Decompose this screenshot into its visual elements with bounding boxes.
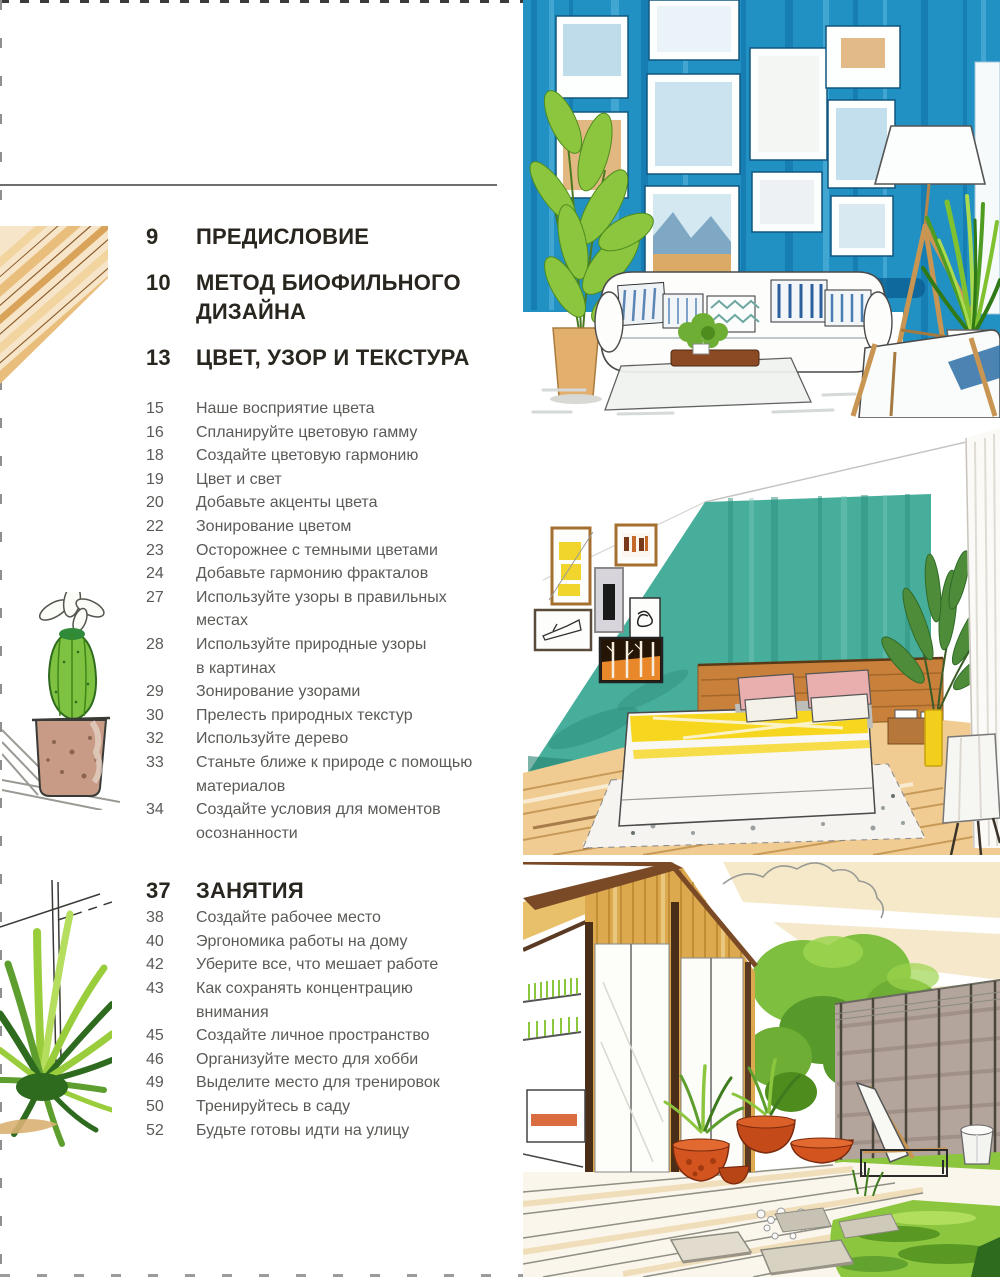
item-title: Создайте цветовую гармонию xyxy=(196,444,524,468)
top-dashed-border xyxy=(0,0,524,3)
leaves xyxy=(0,914,112,1144)
item-title: Создайте рабочее место xyxy=(196,906,524,930)
item-page-number: 46 xyxy=(146,1048,196,1072)
item-title: Добавьте акценты цвета xyxy=(196,491,524,515)
item-page-number: 32 xyxy=(146,727,196,751)
item-page-number: 20 xyxy=(146,491,196,515)
toc-item: 46Организуйте место для хобби xyxy=(146,1048,524,1072)
toc-item: 49Выделите место для тренировок xyxy=(146,1071,524,1095)
item-page-number: 52 xyxy=(146,1119,196,1143)
item-title: Используйте дерево xyxy=(196,727,524,751)
item-page-number: 34 xyxy=(146,798,196,845)
item-page-number: 40 xyxy=(146,930,196,954)
garden-stool xyxy=(961,1125,993,1164)
item-page-number: 45 xyxy=(146,1024,196,1048)
item-page-number: 24 xyxy=(146,562,196,586)
item-title: Создайте условия для моментов осознаннос… xyxy=(196,798,524,845)
patio-illustration xyxy=(523,862,1000,1277)
toc-section-heading: 10 МЕТОД БИОФИЛЬНОГО ДИЗАЙНА xyxy=(146,268,524,326)
item-title: Как сохранять концентрацию внимания xyxy=(196,977,524,1024)
toc-section-heading: 13 ЦВЕТ, УЗОР И ТЕКСТУРА xyxy=(146,343,524,372)
item-page-number: 43 xyxy=(146,977,196,1024)
item-title: Тренируйтесь в саду xyxy=(196,1095,524,1119)
item-page-number: 19 xyxy=(146,468,196,492)
section-title: ЦВЕТ, УЗОР И ТЕКСТУРА xyxy=(196,343,524,372)
item-title: Наше восприятие цвета xyxy=(196,397,524,421)
item-title: Зонирование цветом xyxy=(196,515,524,539)
toc-item: 40Эргономика работы на дому xyxy=(146,930,524,954)
toc-item: 16Спланируйте цветовую гамму xyxy=(146,421,524,445)
yucca-illustration xyxy=(0,872,112,1157)
fireplace xyxy=(600,638,662,682)
item-title: Используйте природные узоры в картинах xyxy=(196,633,524,680)
item-title: Эргономика работы на дому xyxy=(196,930,524,954)
item-title: Создайте личное пространство xyxy=(196,1024,524,1048)
item-title: Добавьте гармонию фракталов xyxy=(196,562,524,586)
section-title: ЗАНЯТИЯ xyxy=(196,876,524,905)
toc-item: 27Используйте узоры в правильных местах xyxy=(146,586,524,633)
book-toc-page: 9 ПРЕДИСЛОВИЕ 10 МЕТОД БИОФИЛЬНОГО ДИЗАЙ… xyxy=(0,0,1000,1277)
flower xyxy=(37,592,107,633)
patio-sketch xyxy=(523,862,1000,1277)
item-page-number: 29 xyxy=(146,680,196,704)
item-page-number: 30 xyxy=(146,704,196,728)
toc-item: 42Уберите все, что мешает работе xyxy=(146,953,524,977)
item-page-number: 38 xyxy=(146,906,196,930)
toc-item: 32Используйте дерево xyxy=(146,727,524,751)
toc-item: 34Создайте условия для моментов осознанн… xyxy=(146,798,524,845)
toc-item: 52Будьте готовы идти на улицу xyxy=(146,1119,524,1143)
item-title: Выделите место для тренировок xyxy=(196,1071,524,1095)
item-page-number: 16 xyxy=(146,421,196,445)
wood-texture-sketch xyxy=(0,226,112,386)
bedroom-sketch xyxy=(523,428,1000,855)
item-title: Используйте узоры в правильных местах xyxy=(196,586,524,633)
item-title: Цвет и свет xyxy=(196,468,524,492)
cactus-sketch xyxy=(2,592,120,810)
wood-swatch-illustration xyxy=(0,226,112,386)
toc-item: 28Используйте природные узоры в картинах xyxy=(146,633,524,680)
item-page-number: 27 xyxy=(146,586,196,633)
toc-item: 50Тренируйтесь в саду xyxy=(146,1095,524,1119)
item-page-number: 22 xyxy=(146,515,196,539)
bedroom-illustration xyxy=(523,428,1000,855)
table-of-contents: 9 ПРЕДИСЛОВИЕ 10 МЕТОД БИОФИЛЬНОГО ДИЗАЙ… xyxy=(146,222,524,1142)
toc-item: 15Наше восприятие цвета xyxy=(146,397,524,421)
toc-item: 43Как сохранять концентрацию внимания xyxy=(146,977,524,1024)
toc-item: 33Станьте ближе к природе с помощью мате… xyxy=(146,751,524,798)
toc-item: 45Создайте личное пространство xyxy=(146,1024,524,1048)
toc-item: 18Создайте цветовую гармонию xyxy=(146,444,524,468)
toc-section-heading: 9 ПРЕДИСЛОВИЕ xyxy=(146,222,524,251)
item-title: Будьте готовы идти на улицу xyxy=(196,1119,524,1143)
toc-item: 24Добавьте гармонию фракталов xyxy=(146,562,524,586)
horizontal-rule xyxy=(0,184,497,186)
section-title: МЕТОД БИОФИЛЬНОГО ДИЗАЙНА xyxy=(196,268,524,326)
item-page-number: 50 xyxy=(146,1095,196,1119)
toc-item: 23Осторожнее с темными цветами xyxy=(146,539,524,563)
item-title: Прелесть природных текстур xyxy=(196,704,524,728)
toc-item: 22Зонирование цветом xyxy=(146,515,524,539)
section-number: 37 xyxy=(146,876,196,905)
pot-hint xyxy=(0,1119,58,1134)
toc-section-heading: 37 ЗАНЯТИЯ xyxy=(146,876,524,905)
section-number: 10 xyxy=(146,268,196,326)
wall-frames xyxy=(535,525,662,682)
section-number: 9 xyxy=(146,222,196,251)
item-page-number: 23 xyxy=(146,539,196,563)
toc-item: 38Создайте рабочее место xyxy=(146,906,524,930)
toc-item: 30Прелесть природных текстур xyxy=(146,704,524,728)
cactus-illustration xyxy=(2,592,120,810)
section-number: 13 xyxy=(146,343,196,372)
living-room-sketch xyxy=(523,0,1000,418)
item-title: Зонирование узорами xyxy=(196,680,524,704)
item-title: Осторожнее с темными цветами xyxy=(196,539,524,563)
section-title: ПРЕДИСЛОВИЕ xyxy=(196,222,524,251)
item-page-number: 18 xyxy=(146,444,196,468)
item-title: Станьте ближе к природе с помощью матери… xyxy=(196,751,524,798)
item-title: Организуйте место для хобби xyxy=(196,1048,524,1072)
interior-shelves xyxy=(523,978,585,1167)
house xyxy=(523,862,756,1172)
item-title: Уберите все, что мешает работе xyxy=(196,953,524,977)
pot xyxy=(32,718,110,796)
cactus-body xyxy=(49,628,96,720)
item-page-number: 15 xyxy=(146,397,196,421)
plant-center xyxy=(16,1073,68,1101)
item-page-number: 28 xyxy=(146,633,196,680)
toc-item: 19Цвет и свет xyxy=(146,468,524,492)
item-page-number: 42 xyxy=(146,953,196,977)
yucca-plant-sketch xyxy=(0,872,112,1157)
item-title: Спланируйте цветовую гамму xyxy=(196,421,524,445)
living-room-illustration xyxy=(523,0,1000,418)
item-page-number: 49 xyxy=(146,1071,196,1095)
toc-item: 29Зонирование узорами xyxy=(146,680,524,704)
toc-item: 20Добавьте акценты цвета xyxy=(146,491,524,515)
item-page-number: 33 xyxy=(146,751,196,798)
